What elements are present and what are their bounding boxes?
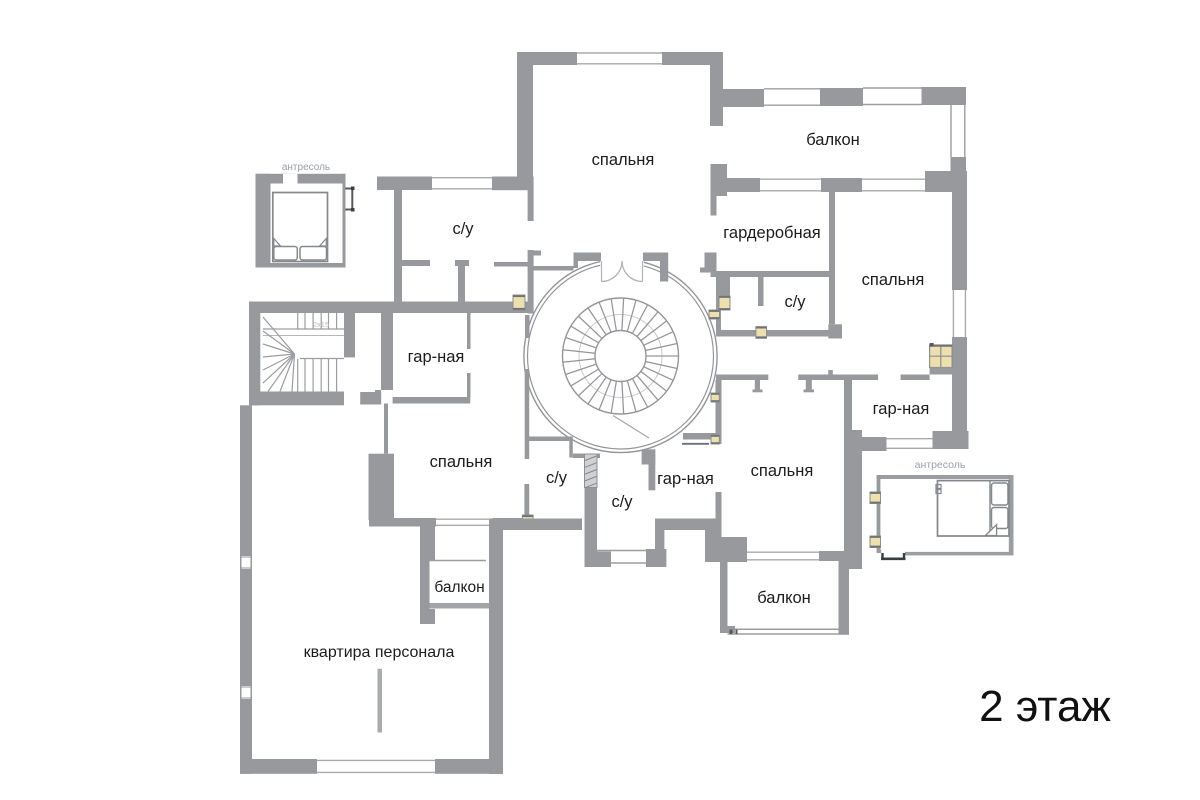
svg-text:балкон: балкон bbox=[806, 131, 860, 149]
svg-text:с/у: с/у bbox=[546, 469, 568, 487]
svg-text:антресоль: антресоль bbox=[282, 162, 330, 173]
svg-text:с/у: с/у bbox=[611, 493, 633, 511]
svg-text:с/у: с/у bbox=[452, 220, 474, 238]
svg-text:спальня: спальня bbox=[862, 271, 925, 289]
svg-text:балкон: балкон bbox=[434, 579, 484, 596]
svg-text:спальня: спальня bbox=[751, 462, 814, 480]
svg-text:гар-ная: гар-ная bbox=[408, 348, 465, 366]
svg-text:2x15: 2x15 bbox=[313, 320, 329, 329]
svg-text:спальня: спальня bbox=[592, 151, 655, 169]
svg-text:гар-ная: гар-ная bbox=[657, 470, 714, 488]
svg-text:спальня: спальня bbox=[430, 453, 493, 471]
svg-text:балкон: балкон bbox=[757, 589, 811, 607]
svg-text:гардеробная: гардеробная bbox=[723, 224, 820, 242]
svg-text:гар-ная: гар-ная bbox=[873, 400, 930, 418]
svg-text:антресоль: антресоль bbox=[915, 459, 966, 471]
svg-text:2 этаж: 2 этаж bbox=[979, 682, 1111, 731]
svg-text:квартира персонала: квартира персонала bbox=[304, 644, 455, 661]
svg-text:с/у: с/у bbox=[784, 293, 806, 311]
